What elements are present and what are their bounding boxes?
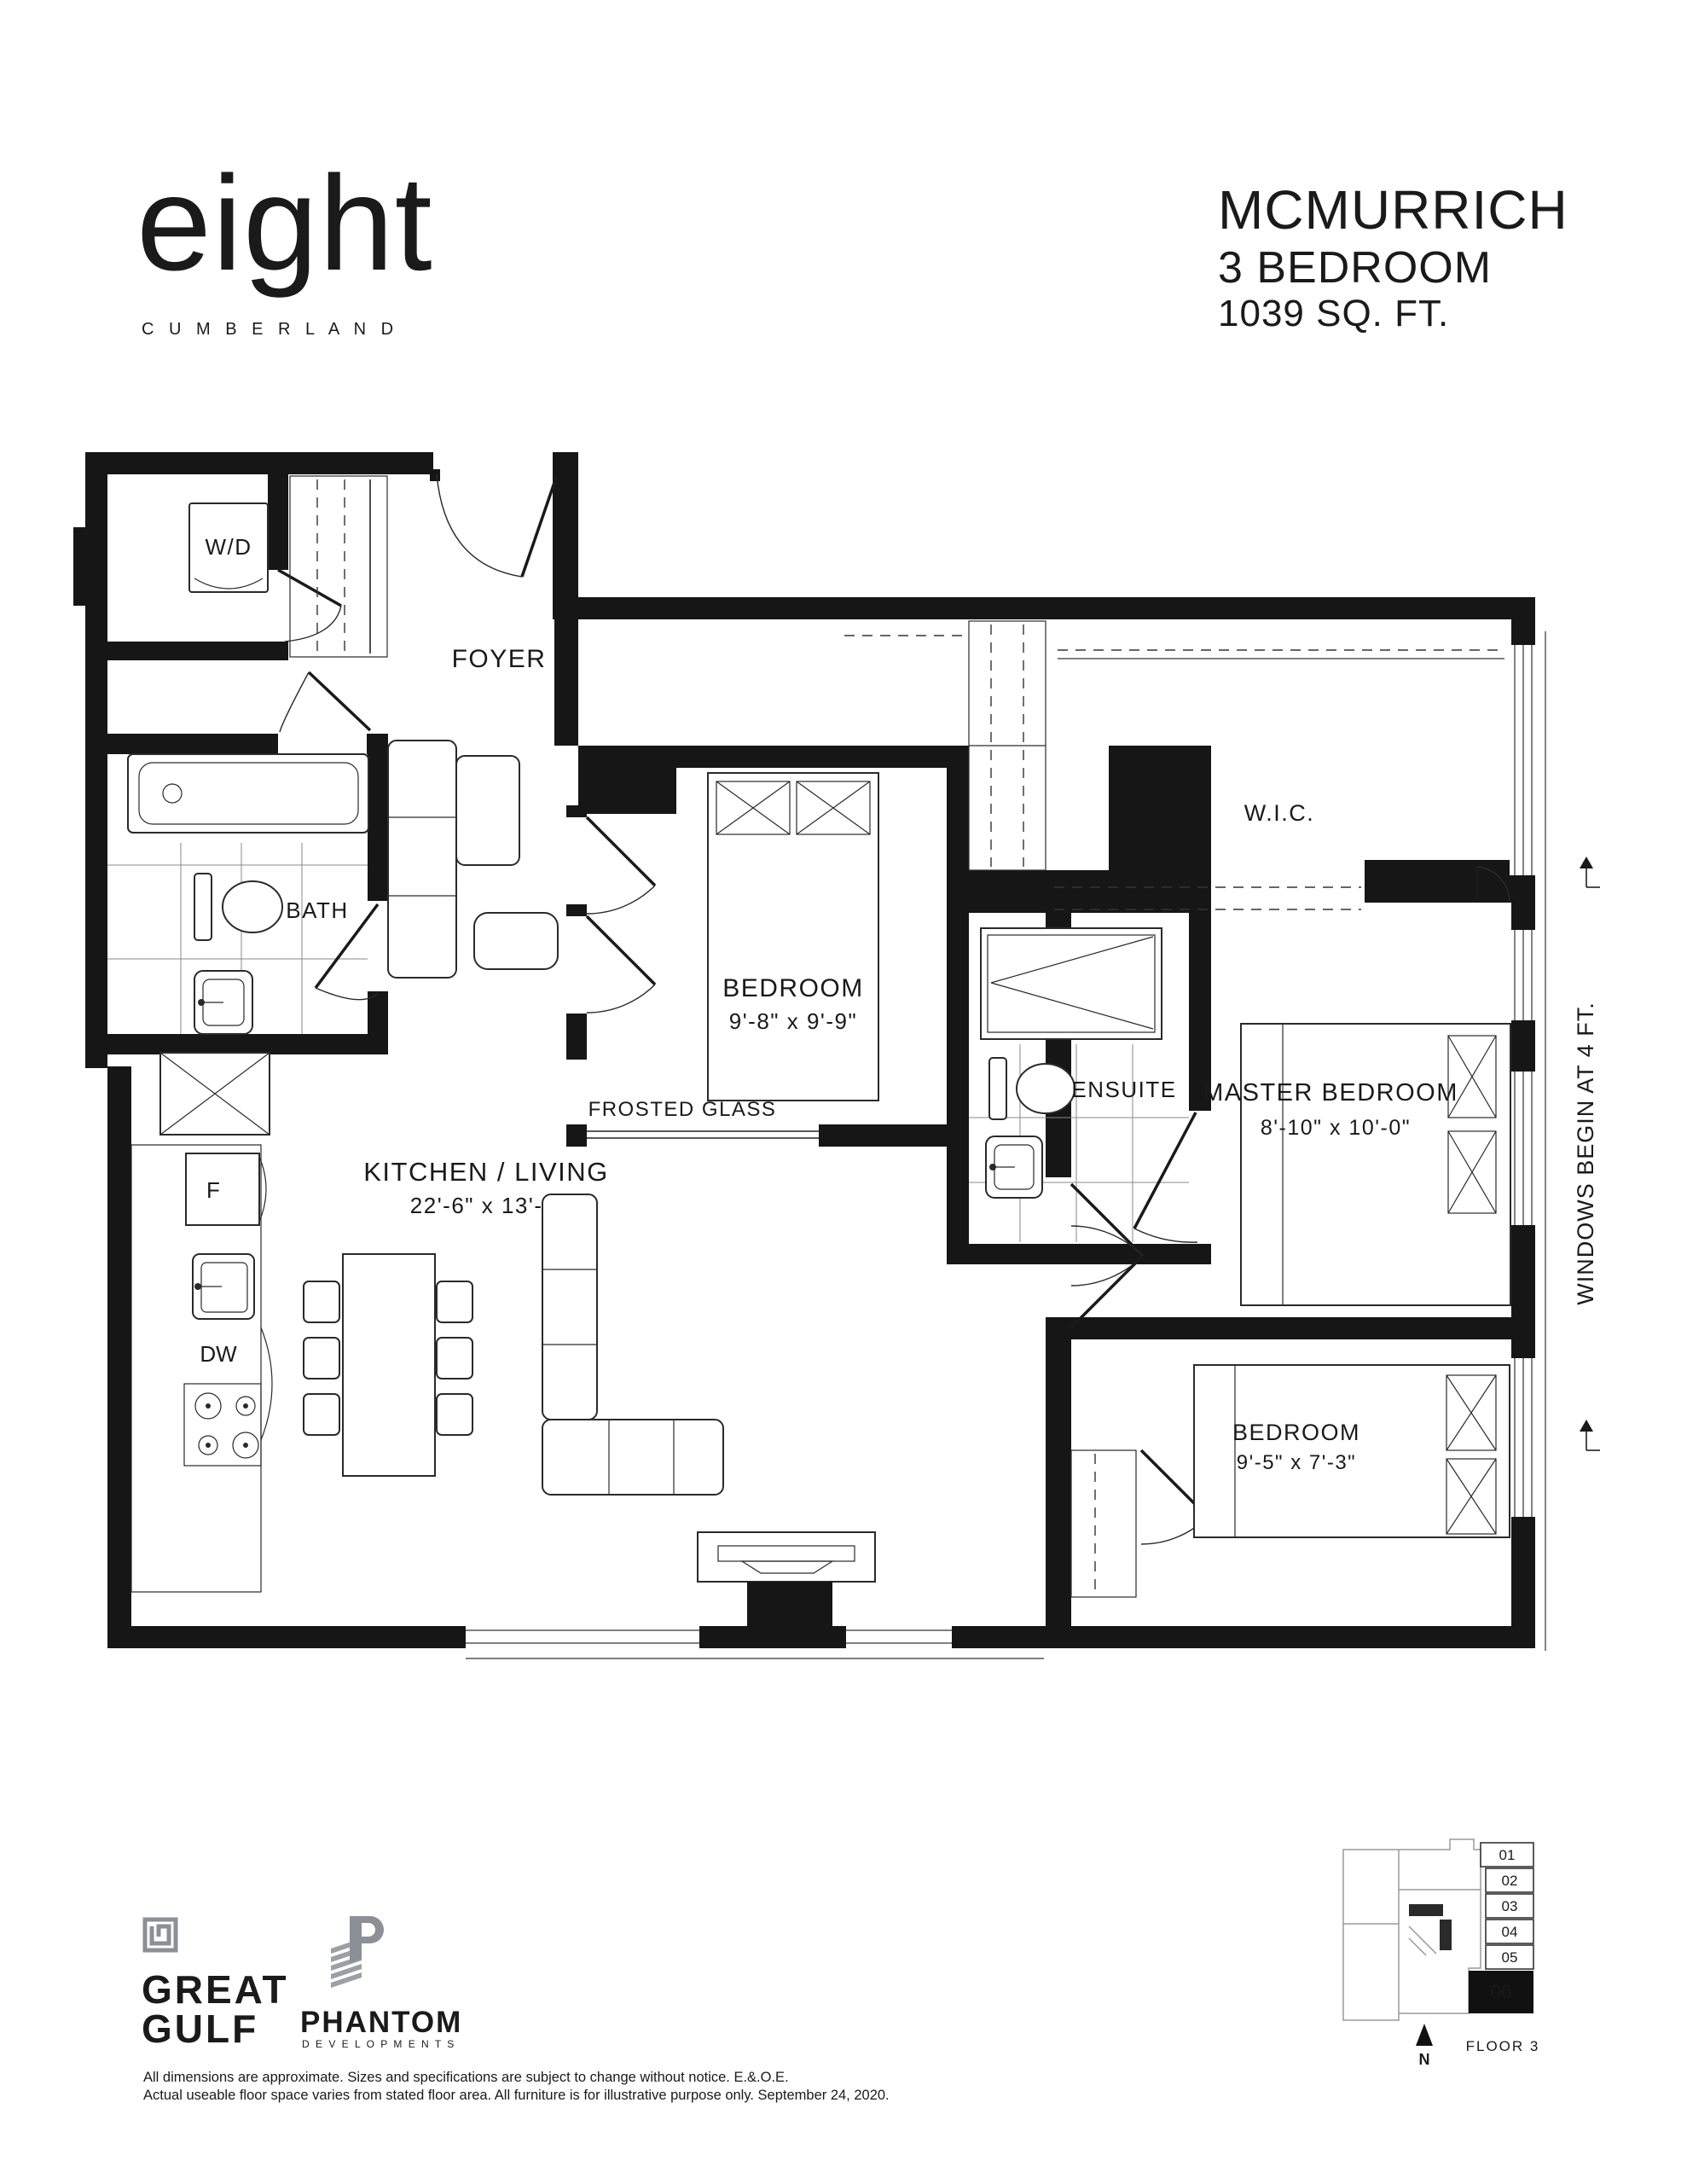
- bedroom3: BEDROOM 9'-5" x 7'-3": [1071, 1365, 1510, 1597]
- right-wall-windows: [1510, 631, 1545, 1651]
- plan-name: MCMURRICH: [1218, 179, 1568, 241]
- note-arrow-top: [1580, 857, 1600, 887]
- fridge-label: F: [206, 1177, 220, 1203]
- logo-subtitle: C U M B E R L A N D: [142, 320, 398, 339]
- shaft-box: [160, 1053, 270, 1135]
- svg-text:06: 06: [1491, 1981, 1511, 2002]
- logo-wordmark: eight: [136, 148, 433, 299]
- bathroom: BATH: [107, 672, 378, 1034]
- frosted-glass-wall: FROSTED GLASS: [587, 1098, 819, 1138]
- svg-text:Actual useable floor space var: Actual useable floor space varies from s…: [143, 2088, 890, 2103]
- tv-console: [698, 1532, 875, 1626]
- bathtub: [128, 754, 368, 833]
- floorplan-sheet: eight C U M B E R L A N D MCMURRICH 3 BE…: [0, 0, 1687, 2184]
- svg-text:9'-8" x 9'-9": 9'-8" x 9'-9": [729, 1008, 858, 1034]
- plan-type: 3 BEDROOM: [1218, 243, 1492, 293]
- svg-text:8'-10" x 10'-0": 8'-10" x 10'-0": [1261, 1116, 1411, 1140]
- svg-text:All dimensions are approximate: All dimensions are approximate. Sizes an…: [143, 2070, 789, 2085]
- svg-text:N: N: [1419, 2051, 1430, 2068]
- floor-label: FLOOR 3: [1466, 2038, 1540, 2054]
- key-plan: 01 02 03 04 05 06 N FLOOR 3: [1343, 1839, 1539, 2068]
- bath-label: BATH: [286, 897, 348, 923]
- svg-text:02: 02: [1502, 1873, 1518, 1889]
- ottoman: [474, 913, 558, 969]
- fridge: F: [186, 1153, 266, 1225]
- north-arrow: N: [1416, 2024, 1433, 2068]
- phantom-icon: [331, 1916, 384, 1988]
- svg-text:9'-5" x 7'-3": 9'-5" x 7'-3": [1237, 1451, 1356, 1474]
- entry-door: [430, 469, 563, 577]
- ensuite-toilet: [989, 1058, 1075, 1119]
- master-bedroom: MASTER BEDROOM 8'-10" x 10'-0": [1203, 1024, 1510, 1305]
- great-gulf-icon: [145, 1920, 176, 1950]
- window-wic: [1510, 645, 1537, 875]
- svg-text:MASTER BEDROOM: MASTER BEDROOM: [1203, 1079, 1458, 1107]
- bath-sink: [194, 971, 252, 1034]
- keyplan-units: 01 02 03 04 05 06: [1469, 1843, 1533, 2013]
- great-gulf-logo: GREAT GULF: [142, 1920, 289, 2051]
- windows-note: WINDOWS BEGIN AT 4 FT.: [1573, 857, 1600, 1450]
- bedroom2: BEDROOM 9'-8" x 9'-9": [587, 773, 878, 1101]
- foyer-label: FOYER: [452, 645, 547, 673]
- svg-text:GULF: GULF: [142, 2007, 258, 2051]
- sectional-sofa: [388, 741, 558, 978]
- phantom-logo: PHANTOM D E V E L O P M E N T S: [300, 1916, 462, 2050]
- note-arrow-bottom: [1580, 1420, 1600, 1450]
- svg-text:03: 03: [1502, 1898, 1518, 1914]
- wd-label: W/D: [205, 534, 252, 560]
- svg-text:BEDROOM: BEDROOM: [1232, 1420, 1360, 1445]
- ensuite-label: ENSUITE: [1071, 1077, 1176, 1102]
- brand-logo: eight C U M B E R L A N D: [136, 148, 433, 339]
- svg-text:05: 05: [1502, 1949, 1518, 1966]
- foyer-closet: [290, 476, 387, 657]
- dishwasher-label: DW: [200, 1341, 237, 1367]
- wic-label: W.I.C.: [1244, 800, 1315, 826]
- kitchen: F DW: [131, 1145, 272, 1592]
- svg-text:KITCHEN / LIVING: KITCHEN / LIVING: [363, 1157, 609, 1187]
- l-sofa: [542, 1194, 723, 1495]
- ensuite-door: [1134, 1112, 1197, 1242]
- svg-text:BEDROOM: BEDROOM: [722, 974, 864, 1002]
- disclaimer: All dimensions are approximate. Sizes an…: [143, 2070, 890, 2103]
- laundry-room: W/D: [189, 503, 341, 642]
- frosted-glass-label: FROSTED GLASS: [588, 1098, 777, 1121]
- ensuite-sink: [986, 1136, 1042, 1198]
- window-master-1: [1510, 930, 1537, 1020]
- shower: [981, 928, 1162, 1039]
- svg-text:D E V E L O P M E N T S: D E V E L O P M E N T S: [302, 2038, 455, 2050]
- window-master-2: [1510, 1072, 1537, 1225]
- bedroom2-doors: [587, 817, 655, 1013]
- kitchen-sink: [193, 1254, 254, 1319]
- bath-doors: [280, 672, 378, 1000]
- window-bedroom3: [1510, 1358, 1537, 1517]
- cooktop: [184, 1384, 261, 1466]
- bedroom3-closet: [1071, 1450, 1208, 1597]
- plan-area: 1039 SQ. FT.: [1218, 293, 1449, 334]
- svg-text:04: 04: [1502, 1924, 1518, 1940]
- svg-text:01: 01: [1499, 1847, 1516, 1863]
- toilet: [194, 874, 282, 940]
- svg-text:GREAT: GREAT: [142, 1967, 289, 2012]
- svg-text:WINDOWS BEGIN AT 4 FT.: WINDOWS BEGIN AT 4 FT.: [1573, 1002, 1598, 1305]
- dining-set: [304, 1254, 472, 1476]
- plan-title: MCMURRICH 3 BEDROOM 1039 SQ. FT.: [1218, 179, 1568, 334]
- svg-text:PHANTOM: PHANTOM: [300, 2006, 462, 2039]
